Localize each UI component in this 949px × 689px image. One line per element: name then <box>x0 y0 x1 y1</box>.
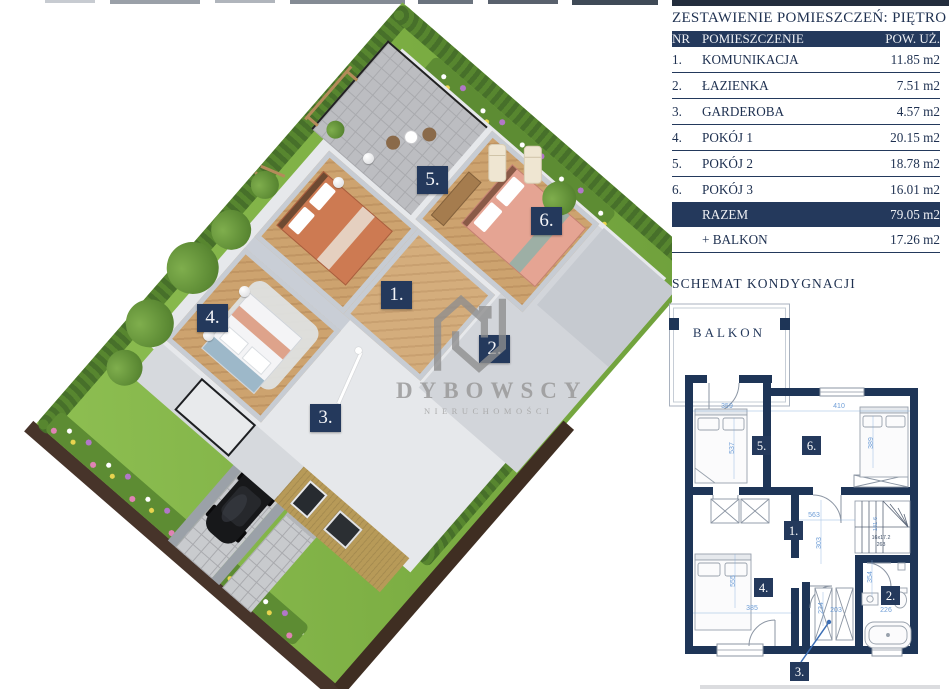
dim-hall-h: 303 <box>816 537 823 549</box>
dim-room4-h: 555 <box>730 575 737 587</box>
dim-ward-w: 203 <box>830 607 842 614</box>
terrace-plant <box>323 117 348 142</box>
balcony-label: BALKON <box>693 325 765 340</box>
render-marker-6: 6. <box>531 207 562 235</box>
dim-room6-h: 389 <box>868 437 875 449</box>
cell-area: 7.51 m2 <box>864 73 940 99</box>
render-marker-1: 1. <box>381 281 412 309</box>
cell-name: KOMUNIKACJA <box>702 47 864 73</box>
stairs-note: 16x17.2 <box>872 535 891 541</box>
cell-nr: 3. <box>672 99 702 125</box>
cell-area: 11.85 m2 <box>864 47 940 73</box>
table-header-row: NR POMIESZCZENIE POW. UŻ. <box>672 31 940 47</box>
plan-marker-1: 1. <box>789 524 798 538</box>
cell-area: 79.05 m2 <box>864 203 940 228</box>
stairs-note: 263 <box>877 542 886 548</box>
cell-name: RAZEM <box>702 203 864 228</box>
dim-bath-h: 354 <box>867 571 874 583</box>
cell-name: GARDEROBA <box>702 99 864 125</box>
table-total-row: RAZEM 79.05 m2 <box>672 203 940 228</box>
room-table: NR POMIESZCZENIE POW. UŻ. 1. KOMUNIKACJA… <box>672 31 940 253</box>
brand-logo-icon <box>425 288 515 378</box>
cell-area: 4.57 m2 <box>864 99 940 125</box>
table-title: ZESTAWIENIE POMIESZCZEŃ: PIĘTRO <box>672 10 946 27</box>
cell-nr: 5. <box>672 151 702 177</box>
dim-bath-w: 226 <box>880 607 892 614</box>
plan-marker3-dot <box>827 620 831 624</box>
cell-name: + BALKON <box>702 227 864 253</box>
sun-lounger <box>524 146 542 184</box>
aerial-render: 5. 6. 1. 4. 2. 3. DYBOWSCY NIERUCHOMOŚCI <box>0 0 672 689</box>
cell-area: 17.26 m2 <box>864 227 940 253</box>
top-crop-bar <box>672 0 949 6</box>
dim-room5-w: 359 <box>721 403 733 410</box>
dim-hall-w: 563 <box>808 512 820 519</box>
brand-subtitle: NIERUCHOMOŚCI <box>424 406 553 416</box>
cell-name: POKÓJ 3 <box>702 177 864 203</box>
plan-marker-4: 4. <box>759 581 768 595</box>
dim-room6-w: 410 <box>833 403 845 410</box>
dim-ward-h: 234 <box>818 602 825 614</box>
brand-name: DYBOWSCY <box>396 378 587 404</box>
cell-area: 16.01 m2 <box>864 177 940 203</box>
cell-nr <box>672 227 702 253</box>
cell-area: 18.78 m2 <box>864 151 940 177</box>
cell-nr: 1. <box>672 47 702 73</box>
table-row: 4. POKÓJ 1 20.15 m2 <box>672 125 940 151</box>
sun-lounger <box>488 144 506 182</box>
render-marker-5: 5. <box>417 166 448 194</box>
plan-marker-5: 5. <box>757 439 766 453</box>
plan-title: SCHEMAT KONDYGNACJI <box>672 276 856 292</box>
table-row: 5. POKÓJ 2 18.78 m2 <box>672 151 940 177</box>
render-marker-4: 4. <box>197 304 228 332</box>
render-marker-3: 3. <box>310 404 341 432</box>
cell-nr: 2. <box>672 73 702 99</box>
balcony-pillar <box>780 318 790 330</box>
cell-name: POKÓJ 1 <box>702 125 864 151</box>
garden-plot <box>35 2 672 687</box>
floor-plan-schematic: BALKON <box>668 296 943 689</box>
terrace-chair <box>419 125 439 145</box>
cell-nr: 6. <box>672 177 702 203</box>
flyer-page: 5. 6. 1. 4. 2. 3. DYBOWSCY NIERUCHOMOŚCI… <box>0 0 949 689</box>
stairs-dim: 181-6 <box>873 517 879 531</box>
lamp-sphere <box>239 286 250 297</box>
lamp-sphere <box>363 153 374 164</box>
table-row: 6. POKÓJ 3 16.01 m2 <box>672 177 940 203</box>
plan-marker-6: 6. <box>807 439 816 453</box>
dim-room4-w: 385 <box>746 605 758 612</box>
cell-name: ŁAZIENKA <box>702 73 864 99</box>
terrace-chair <box>383 133 403 153</box>
col-header-area: POW. UŻ. <box>864 31 940 47</box>
terrace-table <box>401 127 421 147</box>
col-header-nr: NR <box>672 31 702 47</box>
cell-nr <box>672 203 702 228</box>
marker3-leader-dot <box>355 347 362 354</box>
col-header-name: POMIESZCZENIE <box>702 31 864 47</box>
table-balcony-row: + BALKON 17.26 m2 <box>672 227 940 253</box>
dim-room5-h: 537 <box>729 442 736 454</box>
lamp-sphere <box>333 177 344 188</box>
table-row: 3. GARDEROBA 4.57 m2 <box>672 99 940 125</box>
plan-marker-2: 2. <box>886 589 895 603</box>
table-row: 1. KOMUNIKACJA 11.85 m2 <box>672 47 940 73</box>
plan-marker-3: 3. <box>795 665 804 679</box>
balcony-pillar <box>669 318 679 330</box>
cell-nr: 4. <box>672 125 702 151</box>
table-row: 2. ŁAZIENKA 7.51 m2 <box>672 73 940 99</box>
cell-area: 20.15 m2 <box>864 125 940 151</box>
cell-name: POKÓJ 2 <box>702 151 864 177</box>
